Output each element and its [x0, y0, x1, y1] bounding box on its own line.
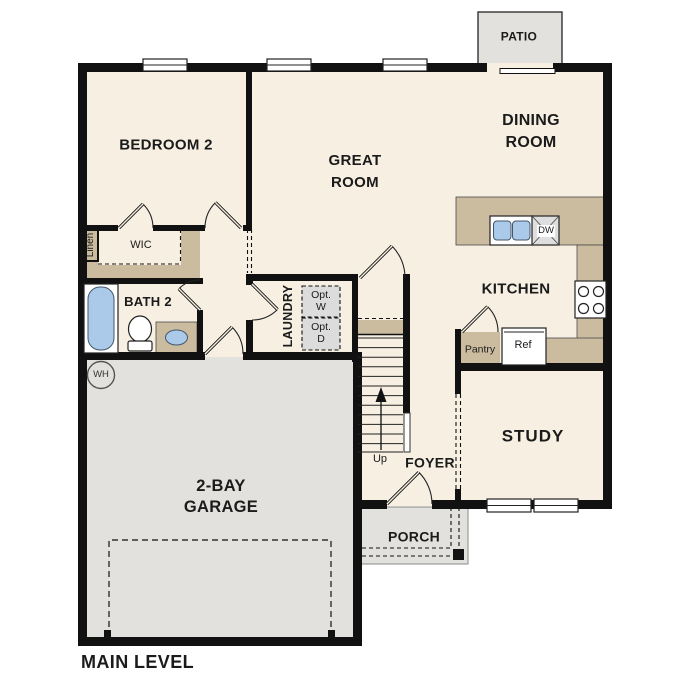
wall-stair-right [403, 274, 410, 413]
wall-laundry-top [246, 274, 354, 281]
wall-garage-top-east [243, 352, 362, 360]
kitchen-sink [490, 216, 533, 245]
stair-railing [404, 413, 410, 452]
window [534, 499, 578, 512]
stair-landing-shelf [358, 320, 403, 334]
garage-door-post-right [328, 630, 335, 637]
window [383, 59, 427, 71]
wall-laundry-left-a [246, 274, 253, 285]
patio-sliding-door [487, 63, 555, 74]
opt-dryer-box [302, 318, 340, 350]
wall-linen-divider-v [97, 228, 99, 262]
wall-pantry-left [455, 329, 461, 371]
floor-plan-drawing [0, 0, 687, 687]
opt-washer-box [302, 286, 340, 317]
wall-bedroom2-right [246, 63, 252, 228]
patio-slab [478, 12, 562, 65]
wall-study-left-bottom [455, 489, 461, 509]
refrigerator-box [502, 328, 546, 365]
wall-stair-left [352, 274, 358, 362]
wall-bedroom2-bottom-b [153, 225, 205, 231]
wall-front-west [353, 500, 387, 509]
wall-linen-divider-h [84, 260, 98, 262]
window [143, 59, 187, 71]
garage-door-post-left [104, 630, 111, 637]
wall-study-left-top [455, 365, 461, 394]
stove-cooktop [575, 281, 606, 318]
toilet [128, 316, 152, 351]
kitchen-counter-bottom [545, 338, 606, 364]
wall-bath2-right-b [197, 310, 203, 355]
window [267, 59, 311, 71]
porch-post [453, 549, 464, 560]
garage-slab [84, 357, 356, 639]
wall-garage-bottom [78, 637, 362, 646]
wall-bath2-top [82, 278, 203, 284]
window [487, 499, 531, 512]
vanity-sink-basin [166, 330, 188, 345]
bathtub [84, 284, 118, 353]
wall-laundry-left-b [246, 320, 253, 355]
laundry-appliance-boxes [302, 286, 340, 350]
wic-interior [98, 228, 181, 265]
pantry-interior [459, 332, 500, 365]
floor-plan: BEDROOM 2 GREAT ROOM DINING ROOM PATIO K… [0, 0, 687, 687]
dishwasher-box [532, 216, 559, 245]
